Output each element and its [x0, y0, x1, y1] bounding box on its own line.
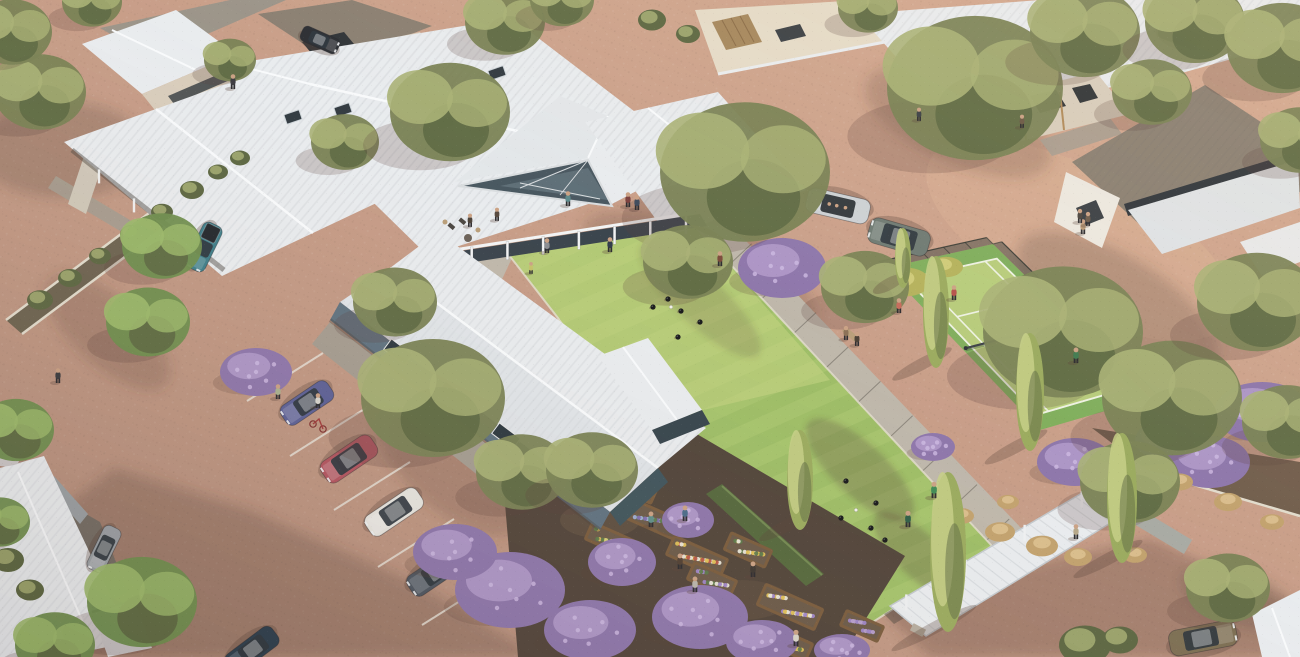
color-grade: [0, 0, 1300, 657]
aerial-render: [0, 0, 1300, 657]
